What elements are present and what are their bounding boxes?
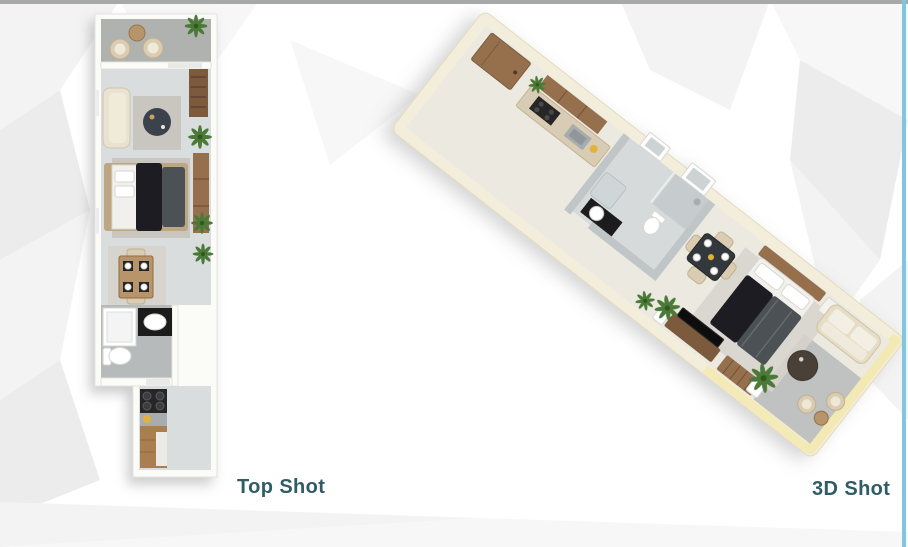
fruit-bowl xyxy=(143,415,151,423)
pillow xyxy=(115,186,134,197)
top-shot-floorplan xyxy=(95,14,217,477)
balcony-door xyxy=(168,63,202,68)
plant xyxy=(185,15,208,38)
pillow xyxy=(115,171,134,182)
cooktop xyxy=(140,389,167,413)
scene xyxy=(0,0,908,547)
right-frame-line xyxy=(902,0,906,547)
bathroom-wall xyxy=(172,305,178,386)
balcony xyxy=(101,15,211,69)
sink xyxy=(144,314,166,330)
top-frame-line xyxy=(0,0,908,4)
tv-console xyxy=(189,69,208,117)
bed-duvet-dark xyxy=(136,163,162,231)
bathroom xyxy=(101,305,178,386)
window xyxy=(95,208,99,234)
plant xyxy=(191,212,213,234)
sofa-cushions xyxy=(109,93,126,143)
coffee-table xyxy=(143,108,171,136)
balcony-table xyxy=(129,25,145,41)
plant xyxy=(193,244,214,265)
bed-duvet-gray xyxy=(162,167,185,227)
three-d-shot-label: 3D Shot xyxy=(812,478,890,501)
kitchen-appliance xyxy=(156,432,167,466)
bathroom-door xyxy=(146,379,170,385)
kitchen-corridor xyxy=(139,386,211,470)
toilet xyxy=(103,348,131,366)
window xyxy=(95,90,99,116)
floorplan-presentation: Top Shot 3D Shot xyxy=(0,0,908,547)
bedroom xyxy=(104,153,213,238)
top-shot-label: Top Shot xyxy=(237,476,325,499)
plant xyxy=(188,125,212,149)
